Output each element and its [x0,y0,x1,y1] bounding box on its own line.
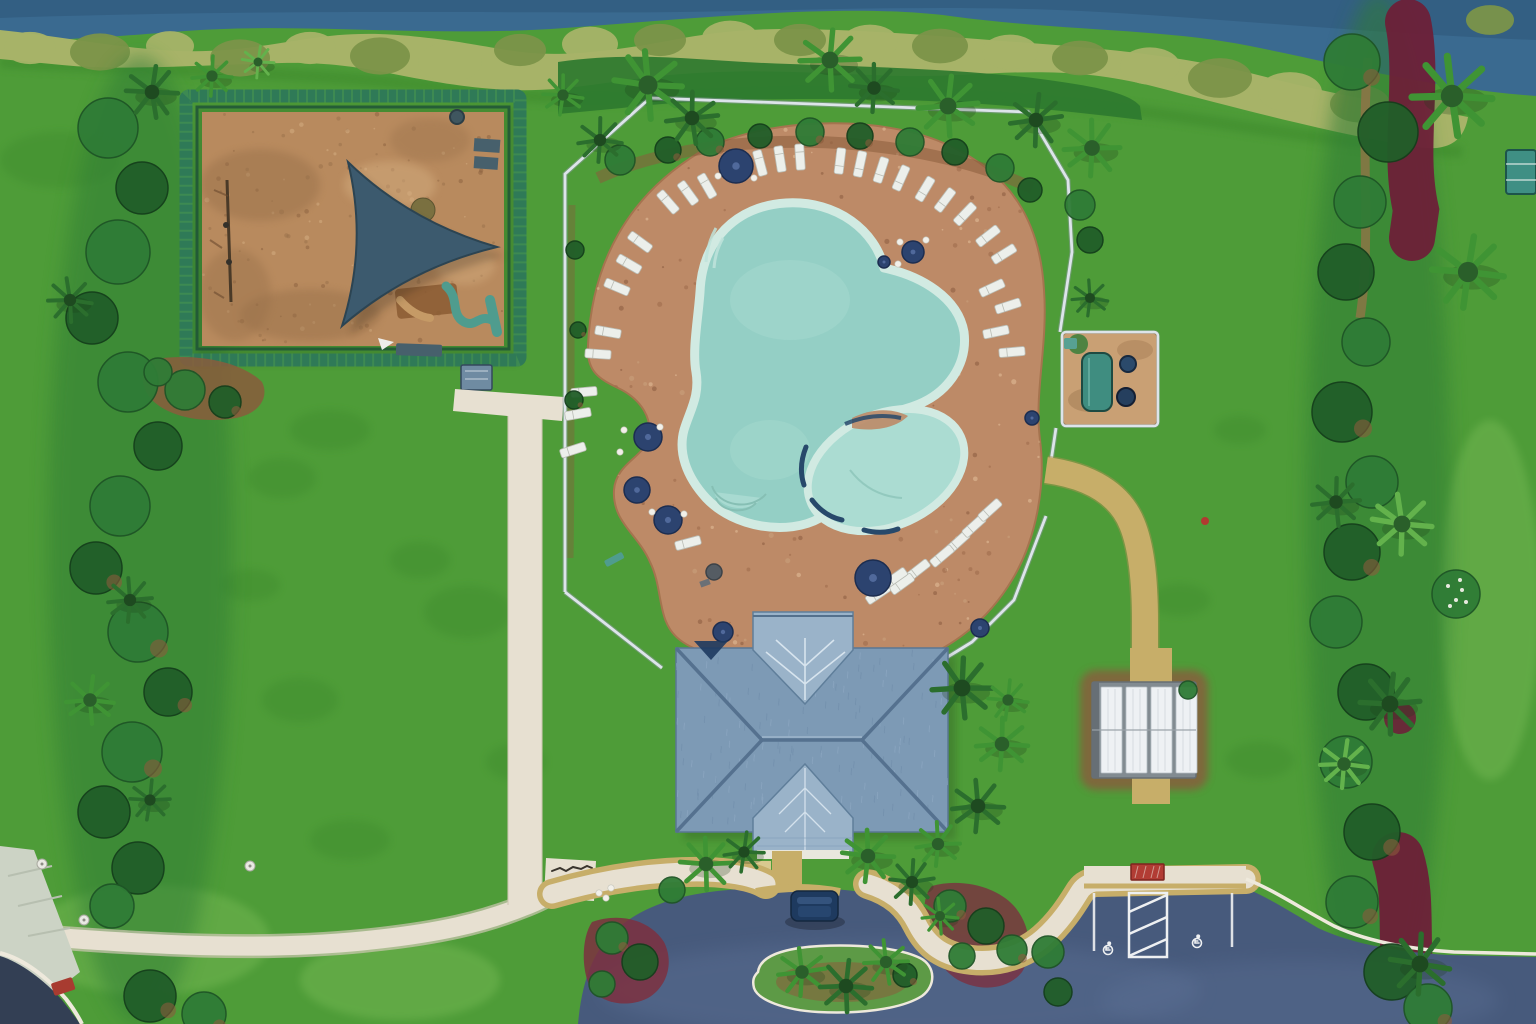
paver-speckle [975,571,979,575]
paver-speckle [620,369,622,371]
umbrella-center [732,162,739,169]
paver-speckle [740,642,743,645]
palm-crown [145,85,160,100]
mulch-speckle [375,153,377,155]
mulch-speckle [345,129,349,133]
paver-speckle [769,533,774,538]
bush [896,128,924,156]
shingle-stroke [884,726,885,733]
shingle-stroke [729,762,730,769]
shingle-stroke [683,758,684,765]
hedge-clump [912,29,968,64]
bush [748,124,772,148]
mulch-speckle [321,284,325,288]
palm-crown [685,111,700,126]
palm-crown [64,294,76,306]
flower-dot [1448,604,1452,608]
palm-crown [1085,293,1095,303]
hedge-clump [4,32,56,64]
paver-speckle [968,240,971,243]
paver-speckle [966,300,968,302]
paver-speckle [950,288,955,293]
paver-speckle [898,537,903,542]
small-white-item [649,509,655,515]
paver-speckle [975,361,979,365]
mulch-speckle [437,180,439,182]
shingle-stroke [947,778,948,785]
shingle-stroke [754,754,755,761]
utility-cover [37,859,47,869]
shingle-stroke [726,693,727,700]
bush [1334,176,1386,228]
paver-speckle [987,207,991,211]
shingle-stroke [855,698,856,705]
flower-dot [1446,584,1450,588]
mulch-speckle [333,152,336,155]
paver-speckle [962,551,966,555]
tire-feature [450,110,464,124]
hedge-clump [634,24,686,56]
small-white-item [715,173,721,179]
paver-speckle [932,405,934,407]
grill [706,564,722,580]
paver-speckle [680,390,685,395]
pool-umbrella [624,477,650,503]
paver-speckle [863,634,865,636]
shingle-stroke [929,725,930,732]
mulch-speckle [319,220,322,223]
hedge-clump [350,37,410,74]
shingle-stroke [721,746,722,753]
aerial-photo [0,0,1536,1024]
paver-speckle [935,530,939,534]
palm-crown [1441,85,1463,107]
hedge-clump [418,42,482,82]
pool-shallow-sheen [730,260,850,340]
bush [1310,596,1362,648]
umbrella-center [869,574,877,582]
mulch-speckle [264,338,267,341]
shingle-stroke [861,796,862,803]
shingle-stroke [936,701,937,708]
shingle-stroke [766,713,767,720]
mulch-spot [1362,909,1378,925]
paver-speckle [959,227,962,230]
paver-speckle [747,568,751,572]
mulch-spot [1018,954,1027,963]
mulch-speckle [339,143,342,146]
shingle-stroke [763,743,764,750]
bush [1044,978,1072,1006]
shingle-stroke [932,795,933,802]
paver-speckle [863,641,868,646]
paver-speckle [679,259,682,262]
paver-speckle [711,526,714,529]
paver-speckle [1002,192,1006,196]
paver-speckle [999,373,1002,376]
shingle-stroke [883,680,884,687]
shingle-stroke [793,748,794,755]
bush [968,908,1004,944]
paver-speckle [963,599,967,603]
small-white-item [897,239,903,245]
utility-cover [79,915,89,925]
mulch-speckle [408,159,410,161]
umbrella-center [721,630,725,634]
lounge-chair [585,349,612,360]
bush [86,220,150,284]
utility-cover-center [41,863,44,866]
paver-speckle [698,619,703,624]
mulch-spot [910,978,917,985]
palm-crown [83,693,96,706]
mulch-speckle [464,216,466,218]
paver-speckle [675,374,677,376]
car-windshield [797,897,832,904]
paver-speckle [918,594,920,596]
palm-crown [1084,140,1100,156]
shingle-stroke [874,796,875,803]
shingle-stroke [874,665,875,672]
shingle-stroke [748,688,749,695]
grass-patch [290,410,370,450]
paver-speckle [762,542,765,545]
clubhouse-front-wall [757,850,849,859]
shingle-stroke [684,723,685,730]
mulch-speckle [262,339,264,341]
shingle-stroke [848,693,849,700]
mulch-speckle [306,246,310,250]
paver-speckle [744,639,747,642]
shingle-stroke [715,776,716,783]
shingle-stroke [762,793,763,800]
mulch-spot [231,406,241,416]
paver-speckle [1007,536,1010,539]
bush [659,877,685,903]
shingle-stroke [807,727,808,734]
hedge-clump [70,33,130,70]
mulch-speckle [492,241,495,244]
palm-crown [906,876,918,888]
playground-bench-east [474,138,501,153]
palm-crown [254,58,263,67]
small-white-item [603,895,609,901]
shingle-stroke [678,691,679,698]
paver-speckle [989,466,991,468]
mulch-speckle [258,334,261,337]
pool-umbrella [719,149,753,183]
mulch-speckle [294,283,298,287]
teal-slide-tube [490,300,497,332]
mulch-speckle [299,122,304,127]
mulch-speckle [290,129,295,134]
umbrella-center [911,250,916,255]
grass-patch [1214,416,1266,444]
swing-seat [226,259,232,265]
grass-patch [424,586,512,638]
mulch-speckle [284,340,287,343]
shingle-stroke [909,812,910,819]
paver-speckle [933,591,937,595]
lounge-chair-body [795,144,806,171]
playground-gate-canopy [461,365,492,390]
shingle-stroke [900,738,901,745]
paver-speckle [973,477,978,482]
mulch-spot [581,332,586,337]
shingle-stroke [901,766,902,773]
palm-crown [594,134,606,146]
small-white-item [895,261,901,267]
shingle-stroke [922,761,923,768]
shingle-stroke [734,801,735,808]
palm-crown [738,846,749,857]
utility-cover-center [249,865,252,868]
grass-patch [248,458,316,498]
shingle-stroke [838,703,839,710]
mulch-speckle [305,235,310,240]
shingle-stroke [847,671,848,678]
bush [622,944,658,980]
shingle-stroke [761,782,762,789]
paver-speckle [649,382,653,386]
equipment-cover [1082,353,1112,411]
mulch-speckle [383,143,386,146]
paver-speckle [684,285,688,289]
shingle-stroke [681,811,682,818]
palm-tree [680,838,732,890]
paver-speckle [733,640,737,644]
shingle-stroke [718,657,719,664]
paver-speckle [789,554,791,556]
paver-speckle [798,536,802,540]
paver-speckle [637,209,639,211]
small-white-item [596,890,602,896]
paver-speckle [998,206,1000,208]
bush [949,943,975,969]
flower-dot [1460,588,1464,592]
mulch-speckle [261,248,263,250]
mulch-speckle [336,116,340,120]
shingle-stroke [903,718,904,725]
palm-crown [144,794,155,805]
paver-speckle [953,243,958,248]
shingle-stroke [892,684,893,691]
shingle-stroke [712,817,713,824]
mulch-speckle [325,281,328,284]
hedge-clump [494,34,546,66]
shingle-stroke [747,761,748,768]
grass-patch [390,542,450,578]
palm-crown [935,911,945,921]
paver-speckle [697,526,700,529]
shingle-stroke [904,736,905,743]
mulch-speckle [349,215,352,218]
bush [942,139,968,165]
shingle-stroke [883,809,884,816]
palm-crown [1382,696,1399,713]
paver-speckle [954,593,956,595]
palm-tree [1312,478,1360,526]
shingle-stroke [759,693,760,700]
hedge-clump [284,32,336,64]
mulch-spot [160,1003,176,1019]
lounge-chair [999,346,1026,357]
small-white-item [681,511,687,517]
shingle-stroke [698,789,699,796]
aerial-photo-stage [0,0,1536,1024]
shingle-stroke [789,719,790,726]
shingle-stroke [833,681,834,688]
paver-speckle [597,287,600,290]
palm-crown [699,857,714,872]
bush [1342,318,1390,366]
paver-speckle [950,518,953,521]
mulch-spot [150,640,168,658]
parking-sidewalk [1084,866,1246,884]
palm-crown [940,98,957,115]
bush [1065,190,1095,220]
mulch-speckle [208,227,211,230]
bush [78,786,130,838]
bush [1179,681,1197,699]
mulch-speckle [319,164,324,169]
mulch-speckle [223,113,226,116]
hedge-clump [562,27,618,62]
shingle-stroke [880,658,881,665]
bush [589,971,615,997]
shingle-stroke [728,817,729,824]
playground-bench [396,343,442,357]
palm-crown [867,81,880,94]
mulch-speckle [369,329,372,332]
paver-speckle [662,266,664,268]
shingle-stroke [677,718,678,725]
paver-speckle [966,511,969,514]
paver-speckle [1037,456,1039,458]
shingle-stroke [859,706,860,713]
shingle-stroke [854,761,855,768]
paver-speckle [624,280,628,284]
bush [1432,570,1480,618]
mulch-mottle [199,249,271,341]
shingle-stroke [774,759,775,766]
shingle-stroke [704,716,705,723]
shingle-stroke [706,661,707,668]
bush [144,358,172,386]
paver-speckle [975,218,979,222]
paver-speckle [657,302,662,307]
shingle-stroke [891,760,892,767]
pavilion-path-north [1130,648,1172,682]
palm-crown [839,979,854,994]
pool-umbrella [1025,411,1039,425]
hedge-clump [1120,47,1180,84]
paver-speckle [998,424,1000,426]
umbrella-center [1030,416,1033,419]
shingle-stroke [922,693,923,700]
paver-speckle [672,504,674,506]
mulch-spot [144,760,162,778]
hedge-clump [1258,72,1322,112]
paver-speckle [692,569,697,574]
shingle-stroke [838,747,839,754]
palm-crown [1329,495,1342,508]
paver-speckle [884,239,889,244]
shingle-stroke [734,815,735,822]
umbrella-center [665,517,671,523]
mulch-speckle [466,163,468,165]
umbrella-center [883,261,886,264]
paver-speckle [783,128,787,132]
shingle-stroke [860,652,861,659]
mulch-speckle [316,203,319,206]
paver-speckle [673,479,676,482]
shingle-stroke [914,813,915,820]
shingle-stroke [729,741,730,748]
palm-crown [995,737,1010,752]
shingle-stroke [934,750,935,757]
paver-speckle [629,385,632,388]
shingle-stroke [913,663,914,670]
mulch-spot [578,402,583,407]
paver-speckle [796,573,800,577]
shingle-stroke [760,722,761,729]
pool-pump [1120,356,1136,372]
shingle-stroke [841,796,842,803]
mulch-speckle [352,265,354,267]
paver-speckle [987,551,992,556]
mulch-mottle [200,149,320,221]
mulch-speckle [304,209,309,214]
mulch-speckle [418,338,423,343]
shingle-stroke [812,757,813,764]
paver-speckle [957,579,960,582]
mulch-spot [1363,69,1380,86]
playground-bench-east [474,156,499,170]
mulch-speckle [328,162,332,166]
bush [134,422,182,470]
bush [1358,102,1418,162]
palm-crown [557,89,568,100]
paver-speckle [688,167,690,169]
mulch-speckle [373,128,375,130]
paver-speckle [903,645,905,647]
paver-speckle [646,218,649,221]
red-mat [1131,864,1164,880]
mulch-speckle [479,168,483,172]
umbrella-center [634,487,640,493]
paver-speckle [708,618,712,622]
pool-shallow-sheen [730,420,810,480]
paver-speckle [643,382,647,386]
paver-speckle [939,621,943,625]
shingle-stroke [844,686,845,693]
flower-dot [1464,600,1468,604]
small-white-item [608,885,614,891]
paver-speckle [793,537,797,541]
mulch-spot [716,146,724,154]
paver-speckle [973,453,978,458]
shingle-stroke [877,792,878,799]
lounge-chair-body [585,349,612,360]
shingle-stroke [692,760,693,767]
palm-crown [638,75,657,94]
shingle-stroke [825,701,826,708]
shingle-stroke [821,746,822,753]
shingle-stroke [886,670,887,677]
shingle-stroke [789,730,790,737]
mulch-speckle [297,214,301,218]
